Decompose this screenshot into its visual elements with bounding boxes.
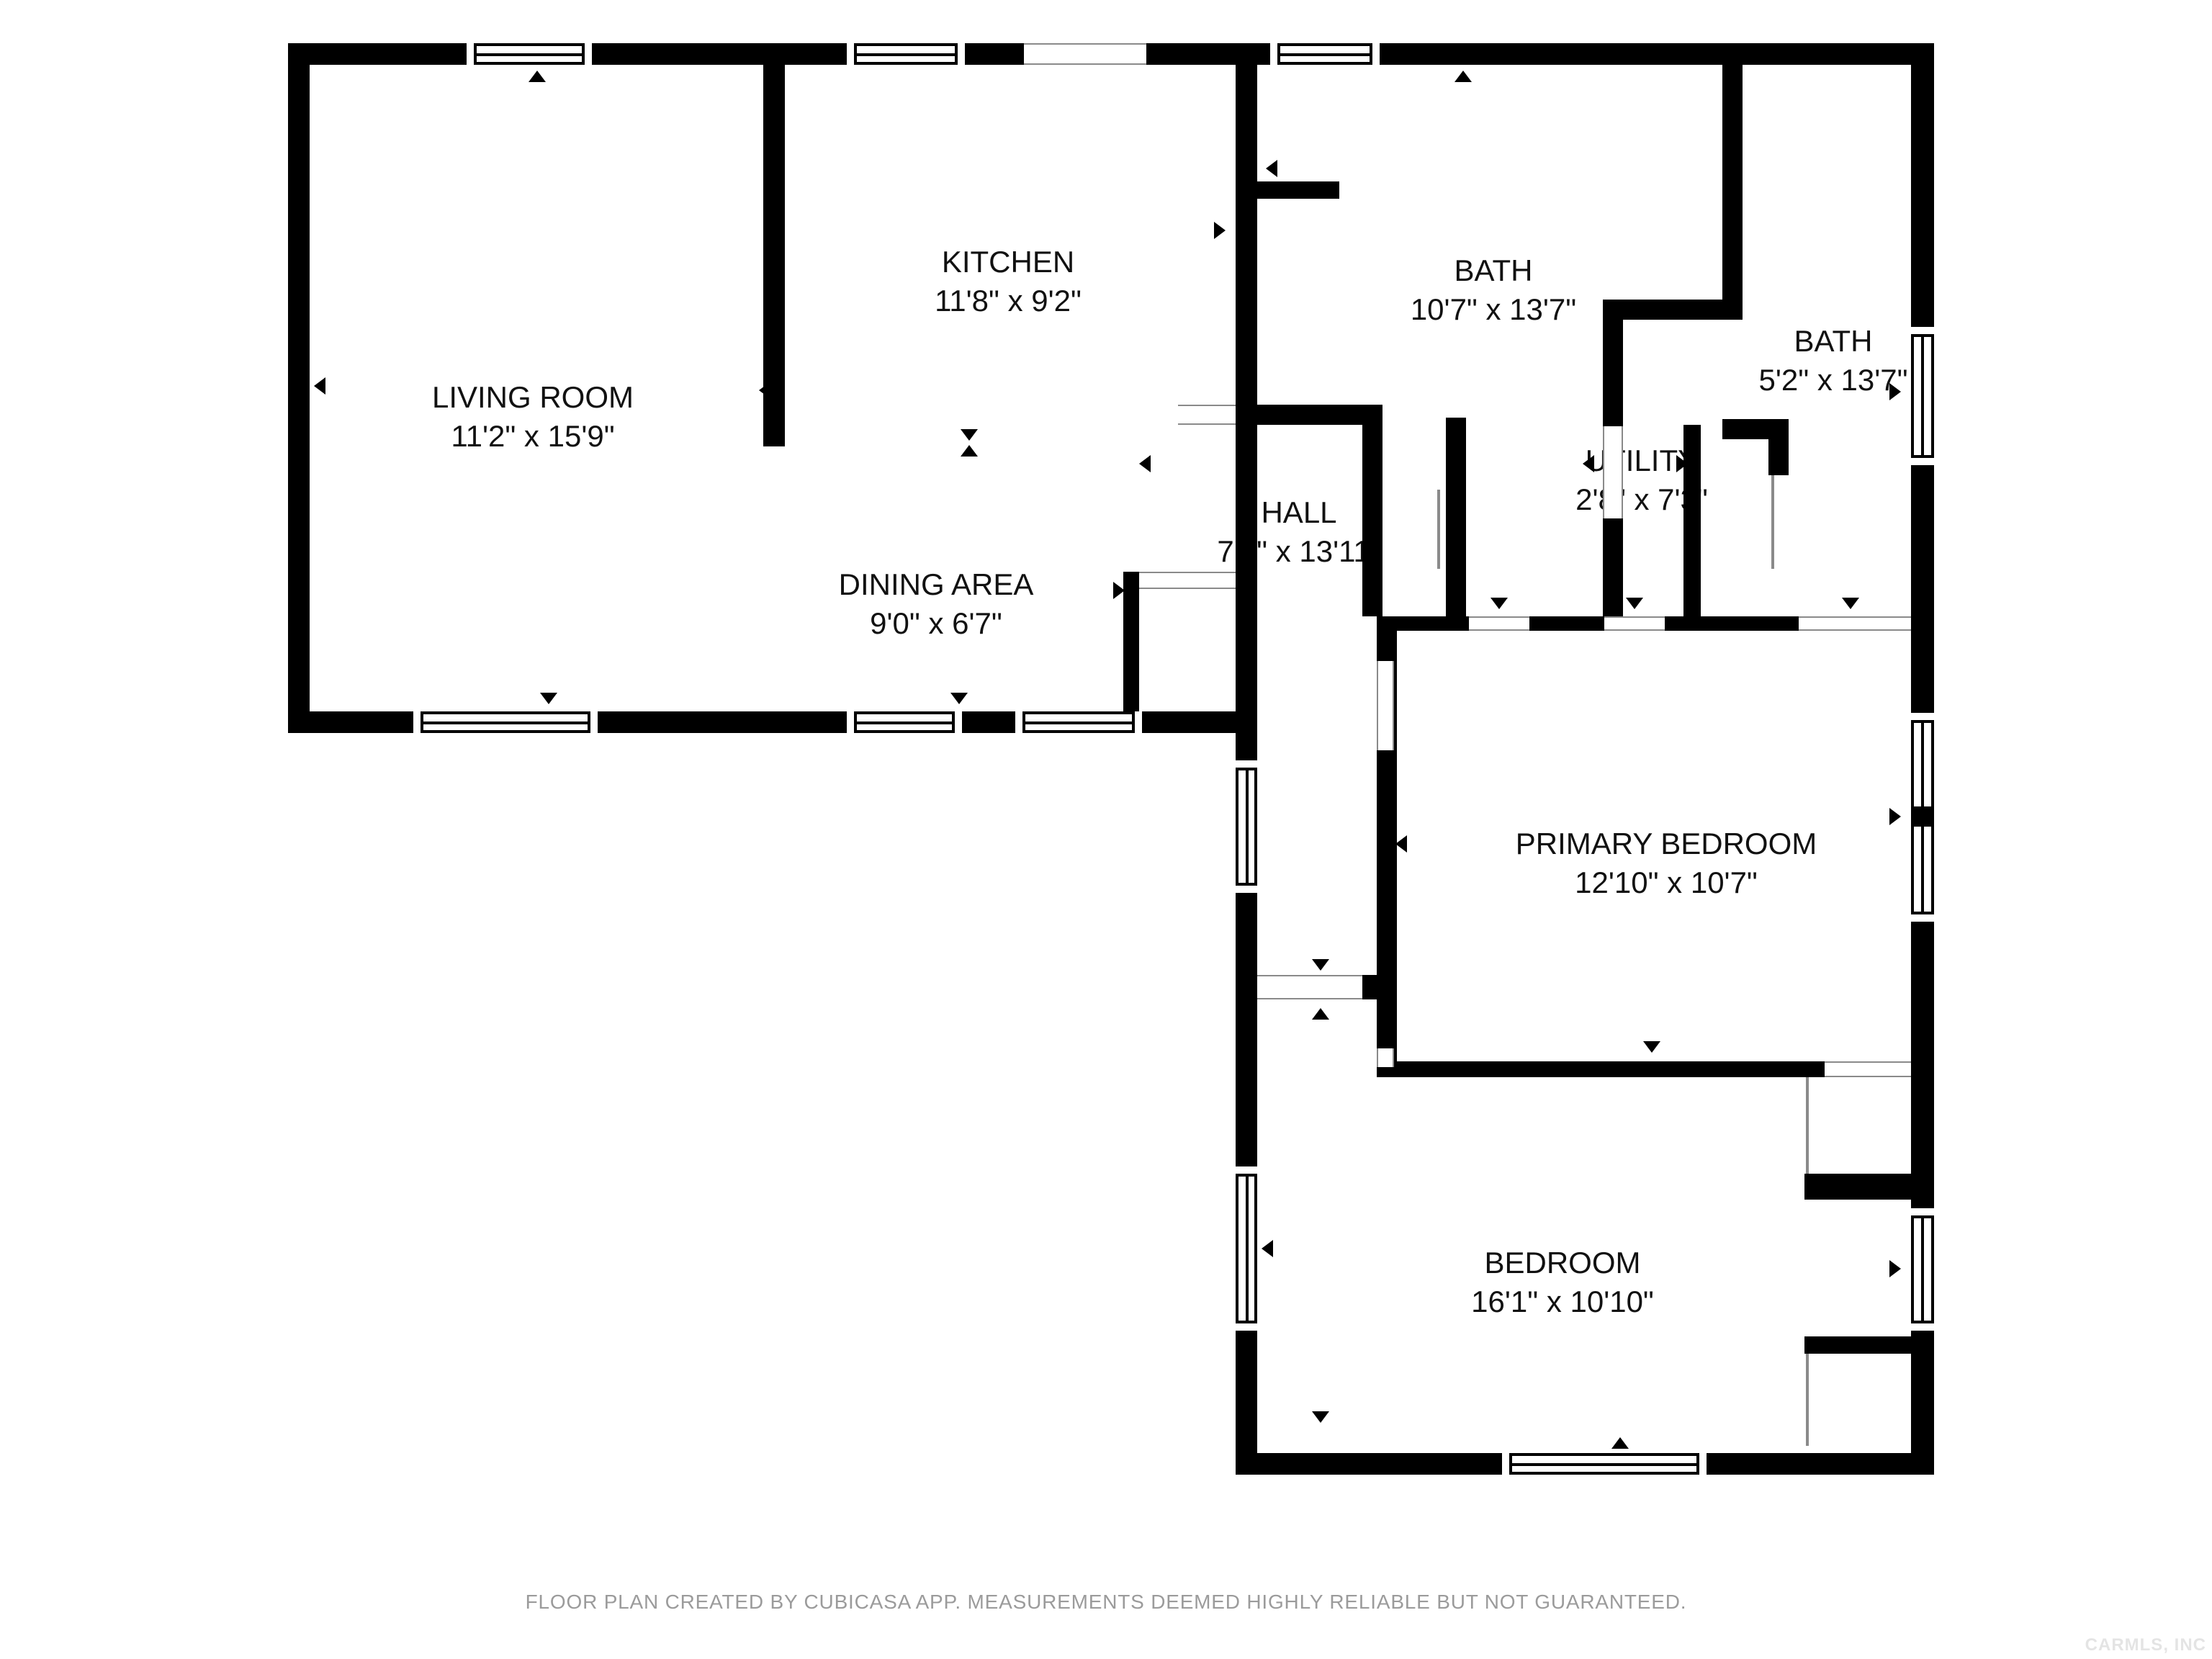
window [1911, 1208, 1934, 1331]
wall-segment [288, 43, 310, 733]
door-opening [1799, 616, 1911, 631]
door-direction-marker-icon [1583, 455, 1594, 472]
window-mullion [1911, 806, 1934, 827]
room-label-primary-bedroom: PRIMARY BEDROOM 12'10" x 10'7" [1516, 825, 1817, 903]
room-label-bath: BATH 10'7" x 13'7" [1411, 252, 1576, 330]
wall-segment [1804, 1174, 1911, 1200]
floor-plan-canvas: LIVING ROOM 11'2" x 15'9" KITCHEN 11'8" … [0, 0, 2212, 1659]
room-label-living-room: LIVING ROOM 11'2" x 15'9" [432, 379, 634, 457]
wall-segment [1683, 425, 1701, 616]
door-opening [1377, 661, 1394, 750]
window-frame [854, 711, 955, 733]
wall-segment [1804, 1061, 1820, 1077]
window-frame [1509, 1453, 1699, 1475]
room-dimensions: 11'8" x 9'2" [935, 282, 1082, 321]
door-direction-marker-icon [529, 71, 546, 82]
window [413, 711, 598, 733]
room-name: BATH [1759, 323, 1908, 361]
window-frame [854, 43, 958, 65]
room-label-bath-2: BATH 5'2" x 13'7" [1759, 323, 1908, 400]
door-direction-marker-icon [1626, 598, 1643, 609]
door-leaf-line [1771, 475, 1774, 569]
door-direction-marker-icon [759, 382, 770, 399]
wall-segment [1362, 425, 1382, 616]
room-dimensions: 5'2" x 13'7" [1759, 361, 1908, 400]
door-direction-marker-icon [1266, 160, 1277, 177]
door-opening [1825, 1061, 1911, 1077]
floor-plan-page: LIVING ROOM 11'2" x 15'9" KITCHEN 11'8" … [0, 0, 2212, 1659]
door-direction-marker-icon [1262, 1240, 1273, 1257]
window-frame [1911, 334, 1934, 458]
wall-segment [1362, 975, 1380, 999]
door-direction-marker-icon [540, 693, 557, 704]
room-dimensions: 12'10" x 10'7" [1516, 864, 1817, 903]
wall-segment [1603, 300, 1743, 320]
door-direction-marker-icon [1842, 598, 1859, 609]
window [1270, 43, 1380, 65]
window [1015, 711, 1142, 733]
room-dimensions: 16'1" x 10'10" [1471, 1283, 1654, 1322]
wall-segment [1257, 181, 1339, 199]
door-direction-marker-icon [314, 377, 325, 395]
room-name: DINING AREA [839, 566, 1034, 605]
window-frame [1911, 1215, 1934, 1323]
door-opening [1178, 405, 1236, 425]
window-frame [1236, 1174, 1257, 1323]
room-name: PRIMARY BEDROOM [1516, 825, 1817, 864]
door-direction-marker-icon [1113, 582, 1125, 599]
door-direction-marker-icon [961, 429, 978, 441]
door-direction-marker-icon [1312, 959, 1329, 971]
door-direction-marker-icon [1455, 71, 1472, 82]
door-direction-marker-icon [1139, 455, 1151, 472]
door-direction-marker-icon [1214, 222, 1226, 239]
room-name: BEDROOM [1471, 1244, 1654, 1283]
room-label-bedroom: BEDROOM 16'1" x 10'10" [1471, 1244, 1654, 1322]
window-frame [1022, 711, 1135, 733]
door-direction-marker-icon [1676, 455, 1688, 472]
window [467, 43, 592, 65]
room-dimensions: 11'2" x 15'9" [432, 418, 634, 457]
door-direction-marker-icon [1312, 1008, 1329, 1020]
room-dimensions: 10'7" x 13'7" [1411, 291, 1576, 330]
room-name: LIVING ROOM [432, 379, 634, 418]
window [847, 43, 965, 65]
door-opening [1603, 426, 1623, 518]
room-label-dining-area: DINING AREA 9'0" x 6'7" [839, 566, 1034, 644]
door-opening [1024, 43, 1146, 65]
door-direction-marker-icon [1889, 808, 1901, 825]
door-opening [1257, 975, 1362, 999]
room-name: KITCHEN [935, 243, 1082, 282]
door-opening [1139, 572, 1236, 589]
door-direction-marker-icon [1395, 835, 1407, 853]
watermark: CARMLS, INC [2085, 1635, 2206, 1655]
window [1236, 760, 1257, 893]
door-direction-marker-icon [1450, 455, 1462, 472]
window [1911, 327, 1934, 465]
room-name: BATH [1411, 252, 1576, 291]
door-direction-marker-icon [1312, 1411, 1329, 1423]
door-direction-marker-icon [1643, 1041, 1660, 1053]
door-direction-marker-icon [1491, 598, 1508, 609]
window [1236, 1166, 1257, 1331]
wall-segment [1722, 65, 1743, 320]
footer-disclaimer: FLOOR PLAN CREATED BY CUBICASA APP. MEAS… [526, 1590, 1687, 1613]
wall-segment [1804, 1336, 1911, 1354]
wall-segment [1123, 572, 1139, 733]
wall-segment [1722, 419, 1789, 439]
wall-segment [1768, 439, 1789, 475]
door-opening [1469, 616, 1529, 631]
wall-segment [1236, 43, 1257, 711]
window [847, 711, 962, 733]
door-leaf-line [1806, 1077, 1809, 1174]
room-label-kitchen: KITCHEN 11'8" x 9'2" [935, 243, 1082, 321]
window [1502, 1453, 1707, 1475]
wall-segment [1377, 1061, 1825, 1077]
door-direction-marker-icon [1889, 383, 1901, 400]
door-direction-marker-icon [961, 445, 978, 457]
door-leaf-line [1806, 1354, 1809, 1446]
window-frame [421, 711, 590, 733]
door-direction-marker-icon [950, 693, 968, 704]
window-frame [1236, 768, 1257, 886]
door-opening [1604, 616, 1665, 631]
window-frame [1277, 43, 1372, 65]
door-opening [1377, 1048, 1394, 1067]
room-dimensions: 9'0" x 6'7" [839, 605, 1034, 644]
door-direction-marker-icon [1889, 1260, 1901, 1277]
window-frame [474, 43, 585, 65]
wall-segment [1446, 418, 1466, 619]
wall-segment [1377, 616, 1799, 631]
door-leaf-line [1437, 490, 1440, 569]
door-direction-marker-icon [1611, 1437, 1629, 1449]
